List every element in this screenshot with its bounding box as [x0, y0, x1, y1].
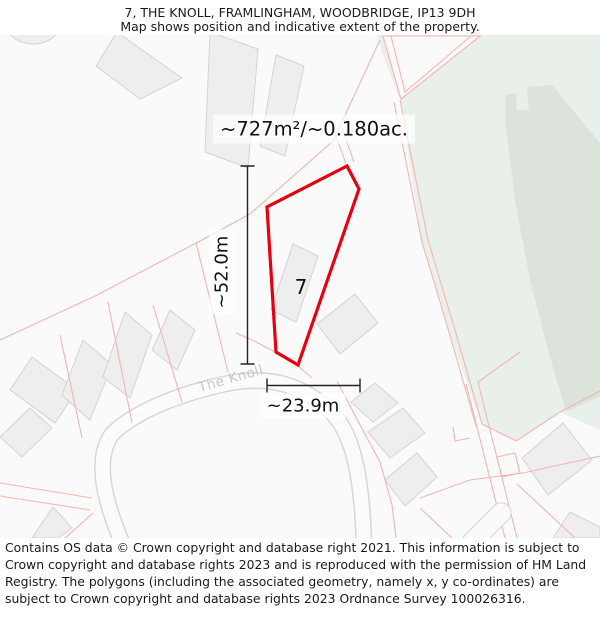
building: [96, 35, 182, 99]
footer: Contains OS data © Crown copyright and d…: [5, 539, 597, 607]
plot-number-label: 7: [295, 275, 308, 299]
parcel-boundary-line: [298, 366, 312, 378]
header: 7, THE KNOLL, FRAMLINGHAM, WOODBRIDGE, I…: [0, 0, 600, 34]
height-measure-label: ~52.0m: [210, 230, 235, 315]
parcel-boundary-line: [453, 427, 470, 441]
page-subtitle: Map shows position and indicative extent…: [0, 20, 600, 34]
building: [152, 310, 195, 370]
page: { "header": { "title": "7, THE KNOLL, FR…: [0, 0, 600, 625]
building: [317, 294, 378, 354]
building: [103, 312, 152, 398]
page-title: 7, THE KNOLL, FRAMLINGHAM, WOODBRIDGE, I…: [0, 6, 600, 20]
building: [3, 35, 63, 44]
map: The Knoll ~727m²/~0.180ac. ~52.0m ~23.9m…: [0, 35, 600, 538]
parcel-boundary-line: [0, 496, 90, 510]
building: [385, 453, 437, 506]
width-measure-label: ~23.9m: [261, 394, 346, 419]
parcel-boundary-line: [420, 508, 452, 538]
copyright-text: Contains OS data © Crown copyright and d…: [5, 540, 586, 606]
building: [32, 507, 72, 538]
vertical-measure-line: [241, 166, 255, 364]
measure-line: [241, 166, 255, 364]
building: [553, 512, 600, 538]
building: [522, 423, 592, 495]
parcel-boundary-line: [236, 333, 277, 353]
building: [205, 35, 258, 168]
parcel-boundary-line: [0, 483, 92, 498]
driveway-capsule: [459, 499, 516, 538]
area-label: ~727m²/~0.180ac.: [213, 115, 415, 144]
parcel-boundary-line: [420, 456, 600, 498]
